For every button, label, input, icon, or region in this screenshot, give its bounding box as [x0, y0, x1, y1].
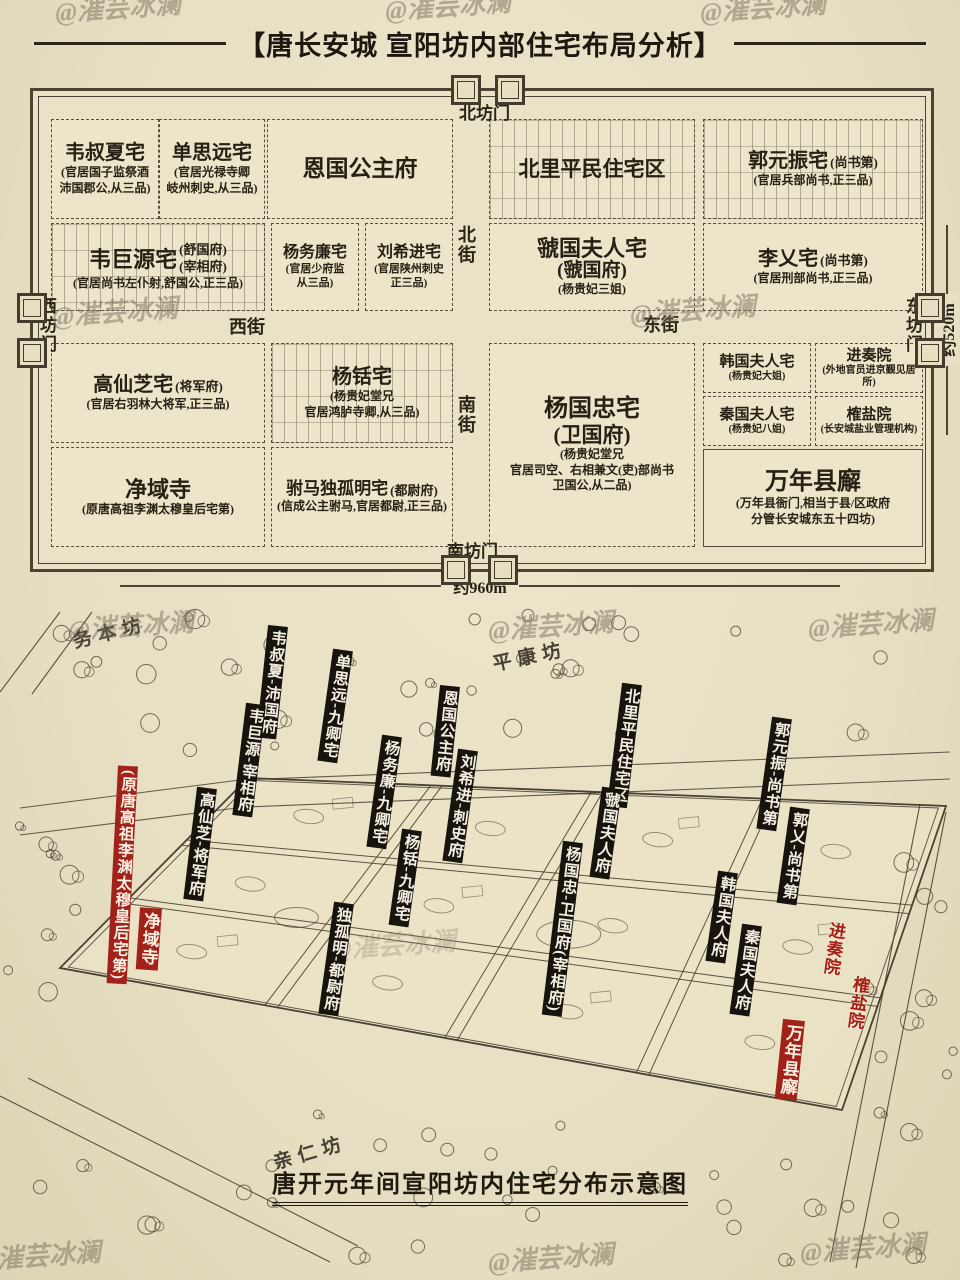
- plan-cell-yangwulian: 杨务廉宅 (官居少府监 从三品): [271, 223, 359, 311]
- cell-name: 郭元振宅: [748, 150, 828, 173]
- header: 【唐长安城 宣阳坊内部住宅布局分析】: [0, 24, 960, 63]
- cell-name: 进奏院: [846, 348, 891, 365]
- cell-sub: (官居光禄寺卿 岐州刺史,从三品): [167, 165, 258, 196]
- street-label-north: 北街: [457, 225, 475, 265]
- gate-icon-south: [488, 555, 518, 585]
- plan-cell-queyanyuan: 榷盐院 (长安城盐业管理机构): [815, 396, 923, 446]
- plan-cell-weishuxia: 韦叔夏宅 (官居国子监祭酒 沛国郡公,从三品): [51, 119, 159, 219]
- street-label-south: 南街: [457, 395, 475, 435]
- plan-cell-beili: 北里平民住宅区: [489, 119, 695, 219]
- scale-width: 约960m: [120, 574, 840, 598]
- cell-sub: (外地官员进京觐见居所): [818, 365, 920, 388]
- plan-cell-dugu: 驸马独孤明宅 (都尉府) (信成公主驸马,官居都尉,正三品): [271, 447, 453, 547]
- header-rule-left: [34, 42, 226, 45]
- cell-name: 秦国夫人宅: [719, 407, 794, 424]
- plan-cell-guoyuanzhen: 郭元振宅 (尚书第) (官居兵部尚书,正三品): [703, 119, 923, 219]
- cell-sub: (杨贵妃堂兄 官居司空、右相兼文(吏)部尚书 卫国公,从二品): [510, 447, 674, 494]
- cell-line2: (虢国府): [557, 261, 627, 282]
- cell-line2: (卫国府): [554, 424, 631, 447]
- gate-icon-north: [495, 75, 525, 105]
- cell-tag: (尚书第): [830, 152, 878, 171]
- ward-plan: 韦叔夏宅 (官居国子监祭酒 沛国郡公,从三品) 单思远宅 (官居光禄寺卿 岐州刺…: [30, 88, 934, 572]
- plan-cell-hanguo: 韩国夫人宅 (杨贵妃大姐): [703, 343, 811, 393]
- gate-icon-east: [915, 293, 945, 323]
- cell-tag: (将军府): [175, 376, 223, 395]
- cell-sub: (杨贵妃大姐): [729, 371, 786, 383]
- cell-name: 虢国夫人宅: [537, 236, 647, 261]
- gate-icon-east: [915, 338, 945, 368]
- cell-name: 韦叔夏宅: [65, 142, 145, 165]
- gate-icon-south: [441, 555, 471, 585]
- scale-line: [120, 585, 441, 587]
- cell-sub: (官居陕州刺史 正三品): [374, 262, 444, 291]
- street-label-west: 西街: [229, 313, 265, 339]
- scale-line: [519, 585, 840, 587]
- cell-name: 杨务廉宅: [283, 244, 347, 262]
- cell-name: 驸马独孤明宅: [286, 479, 388, 499]
- plan-cell-jingyusi: 净域寺 (原唐高祖李渊太穆皇后宅第): [51, 447, 265, 547]
- cell-sub: (万年县衙门,相当于县/区政府 分管长安城东五十四坊): [736, 496, 890, 527]
- cell-name: 恩国公主府: [303, 156, 418, 182]
- gate-icon-north: [451, 75, 481, 105]
- cell-sub: (长安城盐业管理机构): [821, 424, 918, 436]
- plan-cell-yangxian: 杨铦宅 (杨贵妃堂兄 官居鸿胪寺卿,从三品): [271, 343, 453, 443]
- cell-sub: (官居国子监祭酒 沛国郡公,从三品): [60, 165, 151, 196]
- cell-name: 高仙芝宅: [93, 374, 173, 397]
- cell-sub: (官居少府监 从三品): [286, 262, 345, 291]
- plan-cell-yangguozhong: 杨国忠宅 (卫国府) (杨贵妃堂兄 官居司空、右相兼文(吏)部尚书 卫国公,从二…: [489, 343, 695, 547]
- cell-sub: (官居右羽林大将军,正三品): [87, 397, 230, 413]
- cell-sub: (官居刑部尚书,正三品): [754, 271, 873, 287]
- cell-tag: (尚书第): [820, 250, 868, 269]
- cell-name: 韦巨源宅: [89, 247, 177, 272]
- cell-sub: (杨贵妃三姐): [558, 282, 626, 298]
- header-rule-right: [734, 42, 926, 45]
- cell-name: 杨铦宅: [332, 366, 392, 389]
- cell-name: 韩国夫人宅: [719, 354, 794, 371]
- plan-cell-enguo: 恩国公主府: [267, 119, 453, 219]
- plan-cell-wannian: 万年县廨 (万年县衙门,相当于县/区政府 分管长安城东五十四坊): [703, 449, 923, 547]
- gate-icon-west: [17, 338, 47, 368]
- cell-name: 单思远宅: [172, 142, 252, 165]
- cell-name: 榷盐院: [846, 407, 891, 424]
- cell-name: 李乂宅: [758, 248, 818, 271]
- sketch-label-jingyusi: 净域寺: [136, 907, 162, 970]
- cell-name: 刘希进宅: [377, 244, 441, 262]
- cell-name: 北里平民住宅区: [519, 157, 666, 181]
- cell-sub: (杨贵妃堂兄 官居鸿胪寺卿,从三品): [305, 389, 420, 420]
- page-title: 【唐长安城 宣阳坊内部住宅布局分析】: [238, 24, 722, 63]
- sketch-caption: 唐开元年间宣阳坊内住宅分布示意图: [272, 1164, 688, 1206]
- plan-cell-shansiyuan: 单思远宅 (官居光禄寺卿 岐州刺史,从三品): [159, 119, 265, 219]
- cell-name: 杨国忠宅: [544, 396, 640, 424]
- cell-sub: (官居兵部尚书,正三品): [754, 173, 873, 189]
- plan-cell-gaoxianzhi: 高仙芝宅 (将军府) (官居右羽林大将军,正三品): [51, 343, 265, 443]
- cell-tag: (都尉府): [390, 480, 438, 499]
- plan-cell-qinguo: 秦国夫人宅 (杨贵妃八姐): [703, 396, 811, 446]
- cell-name: 净域寺: [125, 477, 191, 502]
- cell-sub: (原唐高祖李渊太穆皇后宅第): [82, 502, 234, 518]
- plan-cell-liuxijin: 刘希进宅 (官居陕州刺史 正三品): [365, 223, 453, 311]
- gate-icon-west: [17, 293, 47, 323]
- cell-sub: (杨贵妃八姐): [729, 424, 786, 436]
- cell-sub: (信成公主驸马,官居都尉,正三品): [277, 499, 447, 515]
- cell-tags: (舒国府) (宰相府): [179, 242, 227, 276]
- cell-name: 万年县廨: [765, 469, 861, 497]
- infographic-page: 【唐长安城 宣阳坊内部住宅布局分析】 韦叔夏宅 (官居国子监祭酒 沛国郡公,从三…: [0, 0, 960, 1280]
